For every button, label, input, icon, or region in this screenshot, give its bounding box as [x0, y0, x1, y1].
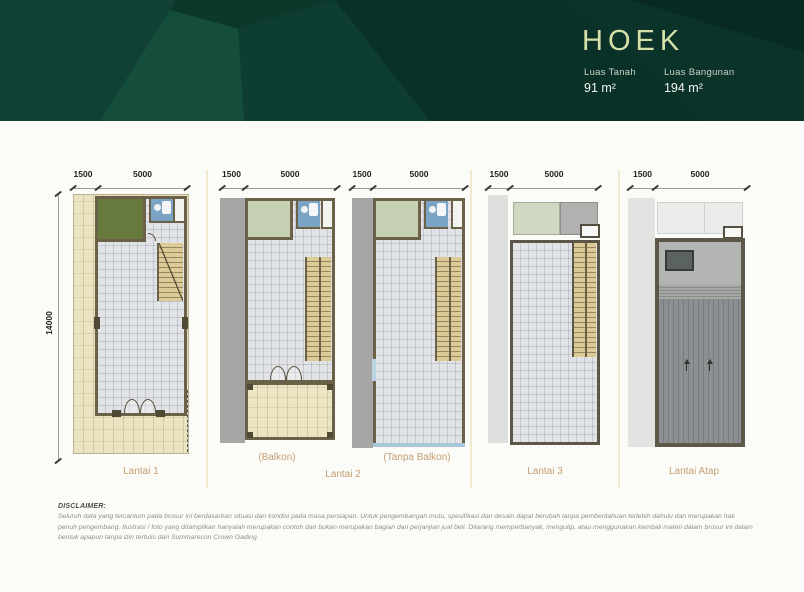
- balcony-post: [327, 432, 333, 438]
- void-area: [376, 201, 421, 240]
- bathroom: [424, 201, 448, 229]
- roof-access-box: [580, 224, 600, 238]
- garden-area: [98, 199, 146, 242]
- roof-garden-block: [513, 202, 560, 235]
- brochure-page: HOEK Luas Tanah 91 m² Luas Bangunan 194 …: [0, 0, 804, 592]
- ridged-roof-section: [659, 299, 741, 443]
- disclaimer-body: Seluruh data yang tercantum pada brosur …: [58, 512, 755, 544]
- toilet-fixture: [429, 206, 436, 213]
- adjacent-roof-strip: [488, 195, 508, 443]
- building-outline: [245, 198, 335, 383]
- area-stats: Luas Tanah 91 m² Luas Bangunan 194 m²: [584, 67, 734, 95]
- floor-label-lantai-atap: Lantai Atap: [649, 466, 739, 477]
- floor-label-lantai-2: Lantai 2: [298, 469, 388, 480]
- door-jamb: [156, 410, 165, 417]
- toilet-fixture: [301, 206, 308, 213]
- adjacent-roof-strip: [220, 198, 245, 443]
- dimension-label: 1500: [350, 169, 374, 179]
- building-outline: [373, 198, 465, 446]
- flat-roof-section: [659, 242, 741, 285]
- bathtub-fixture: [162, 201, 171, 214]
- dimension-label: 5000: [510, 169, 598, 179]
- roof-seam: [704, 203, 705, 233]
- dimension-label: 1500: [630, 169, 655, 179]
- floor-plan-lantai-1: 1500 5000 14000: [55, 168, 200, 478]
- staircase: [157, 243, 183, 301]
- adjacent-roof-strip: [352, 198, 373, 448]
- balcony-post: [247, 384, 253, 390]
- stat-luas-bangunan: Luas Bangunan 194 m²: [664, 67, 734, 95]
- stat-value: 194 m²: [664, 81, 734, 95]
- adjacent-roof-strip: [628, 198, 655, 447]
- header-geometric-pattern: [0, 0, 804, 121]
- building-outline: [510, 240, 600, 445]
- balcony-post: [327, 384, 333, 390]
- dimension-line: [488, 188, 598, 189]
- floor-plan-lantai-atap: 1500 5000: [628, 168, 760, 478]
- balcony-post: [247, 432, 253, 438]
- utility-closet: [451, 201, 462, 229]
- dimension-label: 5000: [373, 169, 465, 179]
- variant-label-balkon: (Balkon): [232, 452, 322, 463]
- disclaimer-heading: DISCLAIMER:: [58, 503, 755, 510]
- bathtub-fixture: [309, 203, 318, 216]
- skylight: [665, 250, 694, 271]
- dimension-line: [630, 188, 747, 189]
- staircase: [305, 257, 331, 361]
- floor-label-lantai-3: Lantai 3: [500, 466, 590, 477]
- floor-plan-lantai-2-balkon: 1500 5000: [215, 168, 348, 478]
- main-roof: [655, 238, 745, 447]
- toilet-fixture: [154, 204, 161, 211]
- dimension-line: [222, 188, 337, 189]
- wall-jamb: [94, 317, 100, 329]
- floor-plan-lantai-3: 1500 5000: [488, 168, 620, 478]
- canopy-strip: [373, 443, 465, 447]
- dimension-line-vertical: [58, 194, 59, 460]
- dimension-label: 5000: [98, 169, 187, 179]
- page-title: HOEK: [582, 25, 684, 58]
- entrance-double-door: [124, 399, 156, 413]
- staircase: [572, 243, 596, 357]
- roof-eave-lines: [659, 285, 741, 299]
- dimension-line: [352, 188, 465, 189]
- utility-closet: [321, 201, 332, 229]
- balcony-double-door: [270, 366, 302, 380]
- slope-arrow-icon: [684, 359, 690, 364]
- boundary-dashed-line: [187, 390, 188, 452]
- dimension-label: 14000: [44, 301, 54, 345]
- slope-arrow-icon: [707, 359, 713, 364]
- dimension-label: 5000: [245, 169, 335, 179]
- void-area: [248, 201, 293, 240]
- building-outline: [95, 196, 187, 416]
- utility-closet: [173, 199, 184, 223]
- stat-value: 91 m²: [584, 81, 636, 95]
- stat-luas-tanah: Luas Tanah 91 m²: [584, 67, 636, 95]
- stat-label: Luas Bangunan: [664, 67, 734, 78]
- dimension-label: 1500: [69, 169, 97, 179]
- floor-label-lantai-1: Lantai 1: [96, 466, 186, 477]
- balcony: [245, 383, 335, 440]
- header-band: HOEK Luas Tanah 91 m² Luas Bangunan 194 …: [0, 0, 804, 121]
- door-jamb: [112, 410, 121, 417]
- dimension-label: 5000: [655, 169, 745, 179]
- bathroom: [149, 199, 173, 223]
- wall-jamb: [182, 317, 188, 329]
- section-divider: [206, 170, 208, 488]
- dimension-label: 1500: [218, 169, 245, 179]
- dimension-line: [73, 188, 187, 189]
- stat-label: Luas Tanah: [584, 67, 636, 78]
- dimension-label: 1500: [485, 169, 513, 179]
- window: [372, 359, 376, 381]
- variant-label-tanpa-balkon: (Tanpa Balkon): [367, 452, 467, 463]
- staircase: [435, 257, 461, 361]
- floor-plan-lantai-2-tanpa-balkon: 1500 5000: [350, 168, 483, 478]
- bathroom: [296, 201, 320, 229]
- bathtub-fixture: [437, 203, 446, 216]
- disclaimer: DISCLAIMER: Seluruh data yang tercantum …: [58, 503, 755, 544]
